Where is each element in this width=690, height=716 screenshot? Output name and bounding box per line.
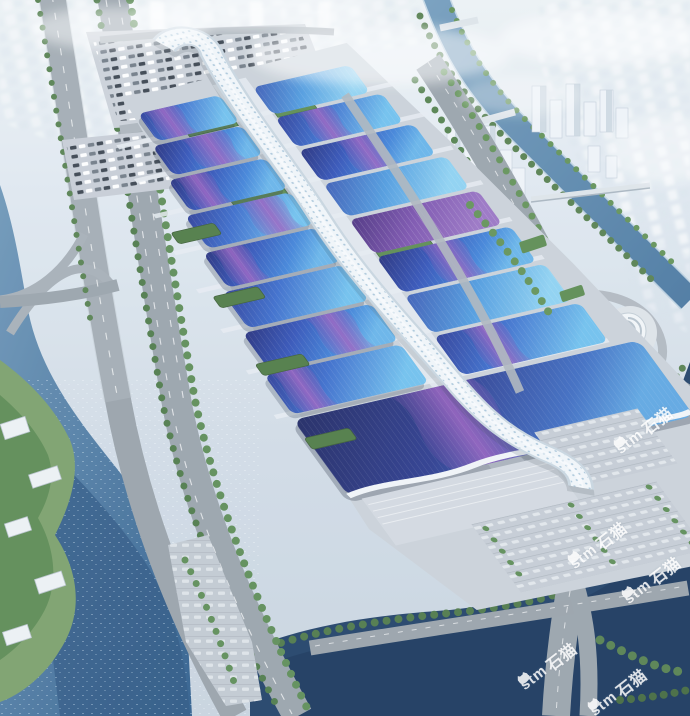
aerial-rendering: stm石猫 stm石猫 stm石猫 stm石猫 stm石猫 bbox=[0, 0, 690, 716]
scene-canvas bbox=[0, 0, 690, 716]
color-wash bbox=[0, 0, 690, 716]
